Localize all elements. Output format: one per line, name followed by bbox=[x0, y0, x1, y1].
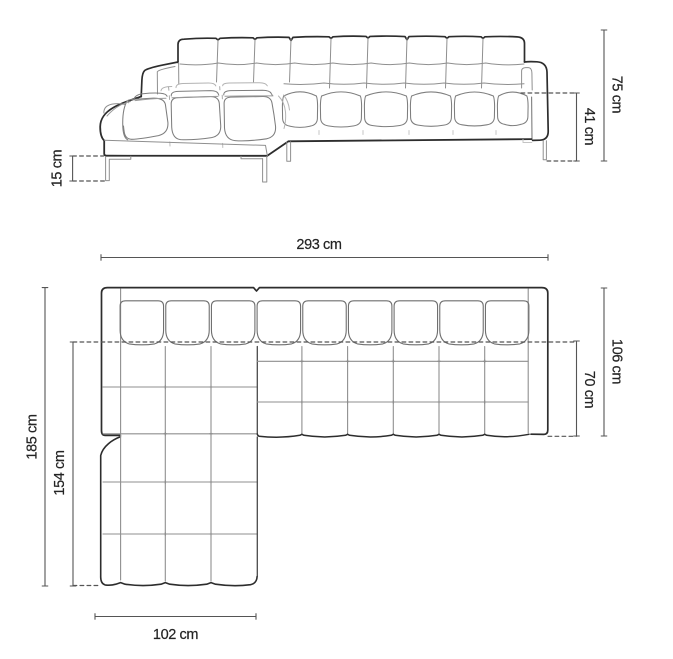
svg-text:75 cm: 75 cm bbox=[609, 76, 625, 114]
svg-text:102 cm: 102 cm bbox=[153, 627, 198, 643]
svg-text:154 cm: 154 cm bbox=[52, 450, 68, 495]
svg-text:15 cm: 15 cm bbox=[50, 149, 66, 187]
svg-text:106 cm: 106 cm bbox=[609, 339, 625, 384]
svg-text:41 cm: 41 cm bbox=[581, 108, 597, 146]
svg-text:70 cm: 70 cm bbox=[581, 371, 597, 409]
svg-text:293 cm: 293 cm bbox=[296, 237, 341, 253]
svg-text:185 cm: 185 cm bbox=[25, 414, 41, 459]
